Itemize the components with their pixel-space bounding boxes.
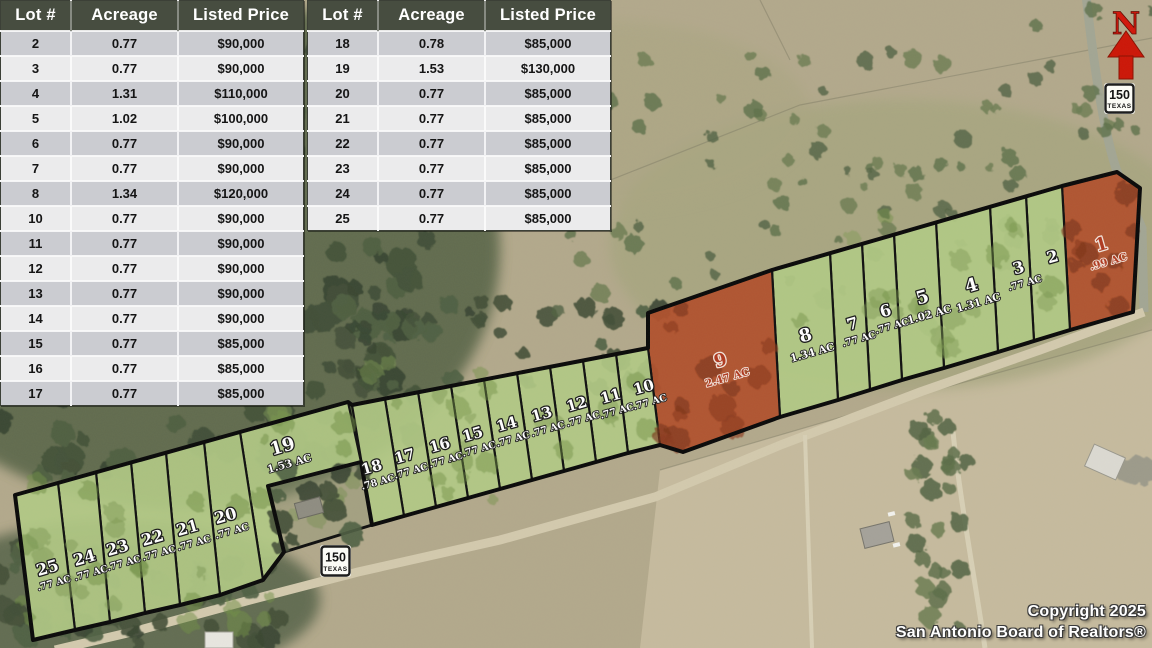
table-row: 210.77$85,000 xyxy=(308,106,611,131)
acreage-cell: 0.77 xyxy=(71,31,178,56)
lot-number-cell: 11 xyxy=(1,231,72,256)
price-cell: $90,000 xyxy=(178,306,304,331)
price-cell: $90,000 xyxy=(178,206,304,231)
acreage-cell: 0.77 xyxy=(378,81,485,106)
column-header: Listed Price xyxy=(178,1,304,32)
lot-number-cell: 20 xyxy=(308,81,379,106)
acreage-cell: 0.77 xyxy=(378,131,485,156)
lot-number-cell: 18 xyxy=(308,31,379,56)
acreage-cell: 0.77 xyxy=(378,106,485,131)
acreage-cell: 1.34 xyxy=(71,181,178,206)
lot-number-cell: 3 xyxy=(1,56,72,81)
lot-number-cell: 14 xyxy=(1,306,72,331)
price-cell: $85,000 xyxy=(178,331,304,356)
price-cell: $85,000 xyxy=(485,181,611,206)
acreage-cell: 0.77 xyxy=(71,306,178,331)
lot-number-cell: 23 xyxy=(308,156,379,181)
acreage-cell: 0.77 xyxy=(71,381,178,406)
price-cell: $100,000 xyxy=(178,106,304,131)
price-table-lots-18-25: Lot #AcreageListed Price180.78$85,000191… xyxy=(307,0,611,231)
copyright-notice: Copyright 2025 San Antonio Board of Real… xyxy=(896,602,1146,644)
price-cell: $90,000 xyxy=(178,56,304,81)
lot-number-cell: 6 xyxy=(1,131,72,156)
price-cell: $85,000 xyxy=(485,31,611,56)
lot-number-cell: 5 xyxy=(1,106,72,131)
price-cell: $85,000 xyxy=(178,381,304,406)
lot-number-cell: 25 xyxy=(308,206,379,231)
table-row: 160.77$85,000 xyxy=(1,356,304,381)
price-cell: $110,000 xyxy=(178,81,304,106)
price-table-lots-2-17: Lot #AcreageListed Price20.77$90,00030.7… xyxy=(0,0,304,406)
table-row: 70.77$90,000 xyxy=(1,156,304,181)
lot-number-cell: 12 xyxy=(1,256,72,281)
column-header: Lot # xyxy=(308,1,379,32)
acreage-cell: 0.77 xyxy=(378,206,485,231)
price-cell: $130,000 xyxy=(485,56,611,81)
price-cell: $85,000 xyxy=(485,156,611,181)
column-header: Acreage xyxy=(378,1,485,32)
lot-number-cell: 15 xyxy=(1,331,72,356)
column-header: Lot # xyxy=(1,1,72,32)
price-cell: $120,000 xyxy=(178,181,304,206)
lot-number-cell: 10 xyxy=(1,206,72,231)
lot-number-cell: 7 xyxy=(1,156,72,181)
acreage-cell: 0.78 xyxy=(378,31,485,56)
column-header: Listed Price xyxy=(485,1,611,32)
acreage-cell: 1.02 xyxy=(71,106,178,131)
lot-number-cell: 19 xyxy=(308,56,379,81)
table-row: 230.77$85,000 xyxy=(308,156,611,181)
price-cell: $90,000 xyxy=(178,156,304,181)
table-row: 240.77$85,000 xyxy=(308,181,611,206)
acreage-cell: 0.77 xyxy=(71,206,178,231)
acreage-cell: 0.77 xyxy=(378,181,485,206)
plat-map-flyer: 1.99 AC23.77 AC41.31 AC51.02 AC6.77 AC7.… xyxy=(0,0,1152,648)
price-cell: $85,000 xyxy=(178,356,304,381)
lot-number-cell: 21 xyxy=(308,106,379,131)
table-row: 180.78$85,000 xyxy=(308,31,611,56)
table-row: 41.31$110,000 xyxy=(1,81,304,106)
table-row: 220.77$85,000 xyxy=(308,131,611,156)
price-cell: $90,000 xyxy=(178,256,304,281)
table-row: 150.77$85,000 xyxy=(1,331,304,356)
copyright-line1: Copyright 2025 xyxy=(896,602,1146,623)
table-row: 110.77$90,000 xyxy=(1,231,304,256)
lot-number-cell: 17 xyxy=(1,381,72,406)
price-cell: $85,000 xyxy=(485,131,611,156)
price-cell: $85,000 xyxy=(485,106,611,131)
acreage-cell: 0.77 xyxy=(71,56,178,81)
lot-number-cell: 8 xyxy=(1,181,72,206)
price-cell: $90,000 xyxy=(178,231,304,256)
lot-number-cell: 4 xyxy=(1,81,72,106)
copyright-line2: San Antonio Board of Realtors® xyxy=(896,623,1146,644)
acreage-cell: 0.77 xyxy=(71,231,178,256)
price-cell: $90,000 xyxy=(178,31,304,56)
table-row: 191.53$130,000 xyxy=(308,56,611,81)
table-row: 250.77$85,000 xyxy=(308,206,611,231)
acreage-cell: 1.53 xyxy=(378,56,485,81)
column-header: Acreage xyxy=(71,1,178,32)
acreage-cell: 0.77 xyxy=(71,331,178,356)
table-row: 140.77$90,000 xyxy=(1,306,304,331)
price-cell: $85,000 xyxy=(485,81,611,106)
acreage-cell: 0.77 xyxy=(71,356,178,381)
acreage-cell: 0.77 xyxy=(378,156,485,181)
table-row: 170.77$85,000 xyxy=(1,381,304,406)
table-row: 81.34$120,000 xyxy=(1,181,304,206)
lot-number-cell: 22 xyxy=(308,131,379,156)
table-row: 30.77$90,000 xyxy=(1,56,304,81)
table-row: 20.77$90,000 xyxy=(1,31,304,56)
table-row: 51.02$100,000 xyxy=(1,106,304,131)
table-row: 60.77$90,000 xyxy=(1,131,304,156)
price-cell: $85,000 xyxy=(485,206,611,231)
price-tables: Lot #AcreageListed Price20.77$90,00030.7… xyxy=(0,0,611,406)
table-row: 120.77$90,000 xyxy=(1,256,304,281)
price-cell: $90,000 xyxy=(178,281,304,306)
price-cell: $90,000 xyxy=(178,131,304,156)
lot-number-cell: 16 xyxy=(1,356,72,381)
acreage-cell: 0.77 xyxy=(71,281,178,306)
acreage-cell: 0.77 xyxy=(71,256,178,281)
table-row: 100.77$90,000 xyxy=(1,206,304,231)
lot-number-cell: 2 xyxy=(1,31,72,56)
table-row: 200.77$85,000 xyxy=(308,81,611,106)
lot-number-cell: 24 xyxy=(308,181,379,206)
acreage-cell: 1.31 xyxy=(71,81,178,106)
lot-number-cell: 13 xyxy=(1,281,72,306)
table-row: 130.77$90,000 xyxy=(1,281,304,306)
acreage-cell: 0.77 xyxy=(71,131,178,156)
acreage-cell: 0.77 xyxy=(71,156,178,181)
